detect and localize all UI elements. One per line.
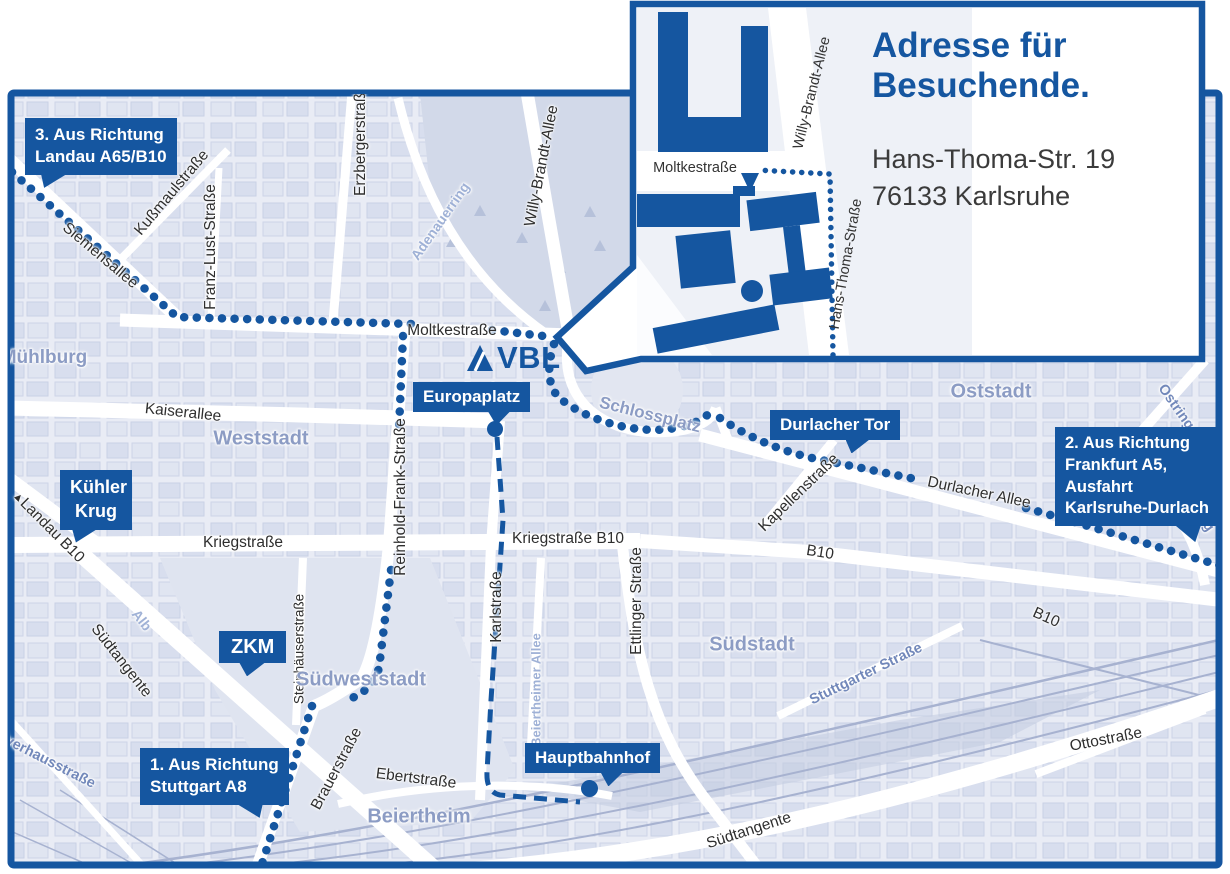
callout-europaplatz: Europaplatz: [413, 382, 530, 412]
callout-line: Landau A65/B10: [35, 146, 167, 168]
callout-line: Stuttgart A8: [150, 776, 279, 798]
callout-line: Karlsruhe-Durlach: [1065, 498, 1209, 520]
callout-line: Kühler: [70, 476, 122, 500]
vbl-pyramid-icon: [466, 344, 494, 372]
europaplatz-marker: [487, 421, 503, 437]
callout-durlacher-tor: Durlacher Tor: [770, 410, 900, 440]
callout-line: 2. Aus Richtung: [1065, 433, 1209, 455]
hauptbahnhof-marker: [581, 780, 598, 797]
inset-moltkestrasse-street: [637, 151, 805, 191]
callout-kuehler-krug: Kühler Krug: [60, 470, 132, 530]
callout-hauptbahnhof: Hauptbahnhof: [525, 743, 660, 773]
callout-route-3-landau: 3. Aus Richtung Landau A65/B10: [25, 118, 177, 175]
callout-line: Frankfurt A5,: [1065, 455, 1209, 477]
callout-line: 1. Aus Richtung: [150, 754, 279, 776]
karlsruhe-directions-map: Siemensallee Kußmaulstraße Franz-Lust-St…: [0, 0, 1230, 874]
callout-line: Krug: [70, 500, 122, 524]
vbl-logo-text: VBL: [497, 342, 561, 373]
callout-zkm: ZKM: [219, 631, 286, 663]
callout-line: Hauptbahnhof: [535, 747, 650, 769]
callout-line: Europaplatz: [423, 386, 520, 408]
callout-line: 3. Aus Richtung: [35, 124, 167, 146]
inset-box: [557, 4, 1202, 371]
vbl-logo: VBL: [466, 342, 561, 373]
callout-line: Ausfahrt: [1065, 477, 1209, 499]
callout-line: Durlacher Tor: [780, 414, 890, 436]
callout-line: ZKM: [231, 634, 274, 660]
callout-route-2-frankfurt: 2. Aus Richtung Frankfurt A5, Ausfahrt K…: [1055, 427, 1219, 526]
callout-route-1-stuttgart: 1. Aus Richtung Stuttgart A8: [140, 748, 289, 805]
